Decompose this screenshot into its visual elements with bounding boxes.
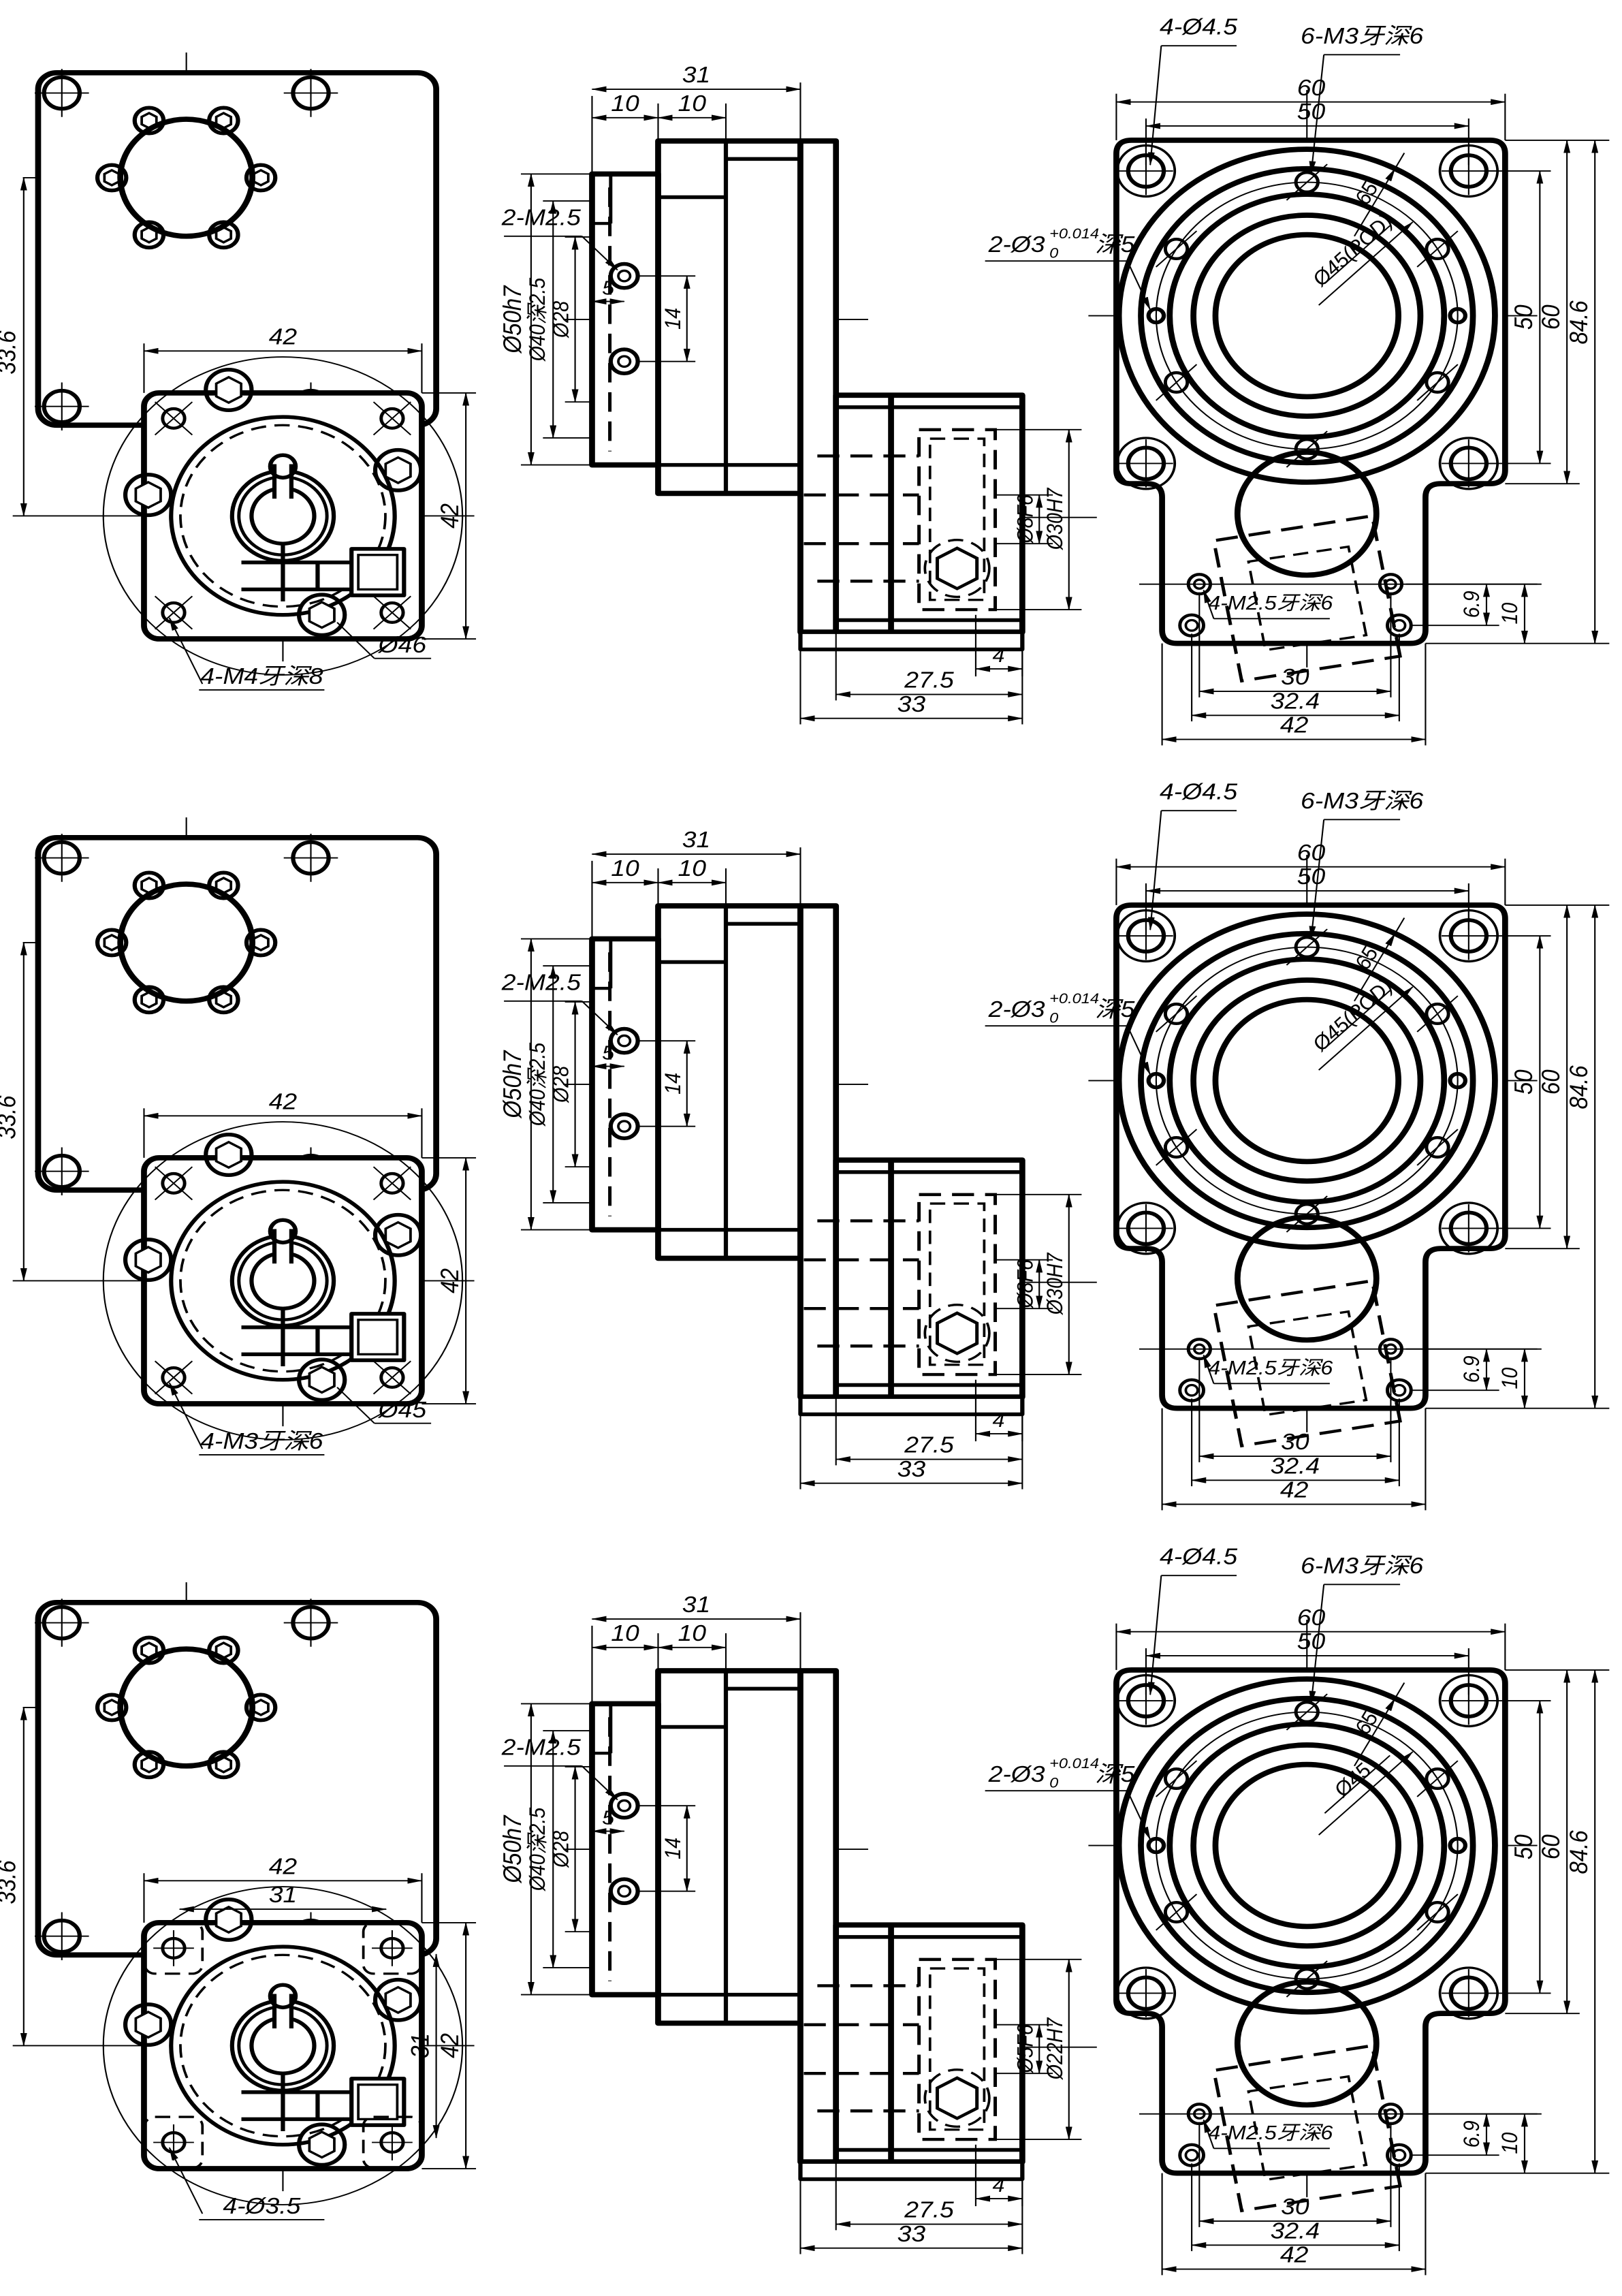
side-section-view: 311010Ø50h7Ø40深2.5Ø282-M2.5514Ø8F6Ø30H74… — [498, 828, 1097, 1489]
left-front-view: 33.642424-M3牙深6Ø45 — [0, 817, 476, 1455]
dim-label: 50 — [1297, 99, 1326, 125]
dim-label: 0 — [1049, 1775, 1059, 1791]
dim-label: 10 — [611, 1621, 639, 1646]
pin-note: 2-Ø3 — [988, 997, 1045, 1022]
tapped-holes-note: 6-M3牙深6 — [1301, 24, 1424, 49]
dim-label: 42 — [436, 503, 464, 529]
left-hole-note: 4-M3牙深6 — [200, 1429, 323, 1454]
dim-label: Ø50h7 — [498, 285, 526, 353]
dim-label: 42 — [269, 1089, 298, 1114]
dim-label: 10 — [678, 1621, 706, 1646]
dim-label: 30 — [1281, 1430, 1309, 1455]
dim-label: Ø28 — [549, 301, 573, 339]
dim-label: 4 — [993, 645, 1005, 667]
side-section-view: 311010Ø50h7Ø40深2.5Ø282-M2.5514Ø5F6Ø22H74… — [498, 1592, 1097, 2254]
dim-label: 31 — [407, 2033, 434, 2058]
dim-label: 4 — [993, 1410, 1005, 1432]
dim-label: 60 — [1537, 1069, 1565, 1095]
dim-label: 33 — [897, 1457, 926, 1482]
left-front-view: 33.6424231314-Ø3.5 — [0, 1582, 476, 2220]
left-boss-dia: Ø45 — [378, 1398, 427, 1423]
dim-label: 42 — [436, 1268, 464, 1293]
dim-label: 5 — [602, 1807, 615, 1829]
dim-label: 30 — [1281, 2195, 1309, 2220]
tapped-holes-note: 6-M3牙深6 — [1301, 1554, 1424, 1579]
dim-label: 33.6 — [0, 1095, 21, 1139]
pin-note: 2-Ø3 — [988, 232, 1045, 257]
dim-label: 31 — [682, 1592, 710, 1618]
dim-label: 42 — [269, 324, 298, 349]
screw-note: 2-M2.5 — [501, 205, 582, 230]
row-svg: 33.642424-M3牙深6Ø45311010Ø50h7Ø40深2.5Ø282… — [0, 765, 1622, 1530]
dim-label: 深5 — [1095, 997, 1134, 1022]
dim-label: 10 — [678, 856, 706, 881]
tab-screws-note: 4-M2.5牙深6 — [1208, 2122, 1333, 2144]
tapped-holes-note: 6-M3牙深6 — [1301, 789, 1424, 814]
pin-note: 2-Ø3 — [988, 1762, 1045, 1787]
dim-label: 31 — [682, 828, 710, 853]
dim-label: 10 — [1497, 1368, 1522, 1389]
output-face-view: 65Ø45(PCD)4-Ø4.56-M3牙深62-Ø3+0.0140深56050… — [985, 780, 1610, 1511]
dim-label: Ø28 — [549, 1066, 573, 1103]
corner-holes-note: 4-Ø4.5 — [1160, 15, 1237, 40]
dim-label: Ø40深2.5 — [525, 1042, 550, 1127]
left-hole-note: 4-M4牙深8 — [200, 664, 323, 689]
dim-label: 42 — [269, 1854, 298, 1879]
screw-note: 2-M2.5 — [501, 1735, 582, 1760]
dim-label: 33 — [897, 692, 926, 717]
dim-label: Ø40深2.5 — [525, 277, 550, 362]
dim-label: 0 — [1049, 245, 1059, 261]
dim-label: Ø50h7 — [498, 1814, 526, 1883]
dim-label: 50 — [1510, 1069, 1538, 1095]
dim-label: 10 — [1497, 603, 1522, 625]
dim-label: 42 — [1280, 713, 1309, 738]
tab-screws-note: 4-M2.5牙深6 — [1208, 1357, 1333, 1379]
dim-label: 10 — [678, 91, 706, 116]
dim-label: 32.4 — [1271, 689, 1320, 714]
dim-label: 42 — [1280, 1478, 1309, 1503]
dim-label: 5 — [602, 1042, 615, 1064]
drawing-rows: 33.642424-M4牙深8Ø46311010Ø50h7Ø40深2.5Ø282… — [0, 0, 1622, 2295]
drawing-row-top: 33.642424-M4牙深8Ø46311010Ø50h7Ø40深2.5Ø282… — [0, 0, 1622, 765]
dim-label: 深5 — [1095, 232, 1134, 257]
cad-drawing-page: { "document": { "type": "engineering-dra… — [0, 0, 1622, 2296]
dim-label: +0.014 — [1049, 990, 1099, 1006]
bore-large-label: Ø22H7 — [1043, 2017, 1067, 2081]
dim-label: 27.5 — [904, 668, 954, 693]
dim-label: 5 — [602, 277, 615, 299]
dim-label: 27.5 — [904, 1433, 954, 1458]
dim-label: 60 — [1297, 76, 1326, 101]
left-boss-dia: Ø46 — [378, 633, 427, 658]
dim-label: +0.014 — [1049, 1755, 1099, 1771]
dim-label: 10 — [611, 91, 639, 116]
output-face-view: 65Ø454-Ø4.56-M3牙深62-Ø3+0.0140深5605050608… — [985, 1545, 1610, 2276]
dim-label: 50 — [1297, 1629, 1326, 1654]
dim-label: Ø50h7 — [498, 1050, 526, 1118]
dim-label: +0.014 — [1049, 225, 1099, 241]
dim-label: 10 — [1497, 2133, 1522, 2154]
dim-label: 14 — [661, 1073, 685, 1095]
bore-large-label: Ø30H7 — [1043, 1253, 1067, 1316]
dim-label: Ø40深2.5 — [525, 1807, 550, 1891]
dim-label: 50 — [1510, 1834, 1538, 1859]
dim-label: 50 — [1297, 864, 1326, 890]
dim-label: 33.6 — [0, 330, 21, 375]
dim-label: 33 — [897, 2222, 926, 2247]
dim-label: 60 — [1297, 840, 1326, 866]
output-face-view: 65Ø45(PCD)4-Ø4.56-M3牙深62-Ø3+0.0140深56050… — [985, 15, 1610, 746]
left-front-view: 33.642424-M4牙深8Ø46 — [0, 52, 476, 690]
dim-label: 32.4 — [1271, 2218, 1320, 2244]
row-svg: 33.642424-M4牙深8Ø46311010Ø50h7Ø40深2.5Ø282… — [0, 0, 1622, 765]
dim-label: 6.9 — [1459, 1355, 1484, 1383]
dim-label: 14 — [661, 308, 685, 330]
bore-small-label: Ø8F6 — [1013, 1259, 1038, 1309]
corner-holes-note: 4-Ø4.5 — [1160, 780, 1237, 805]
dim-label: 30 — [1281, 665, 1309, 690]
dim-label: 33.6 — [0, 1860, 21, 1904]
dim-label: 32.4 — [1271, 1453, 1320, 1479]
dim-label: 深5 — [1095, 1762, 1134, 1787]
dim-label: 31 — [269, 1883, 297, 1908]
bore-small-label: Ø8F6 — [1013, 494, 1038, 544]
left-hole-note: 4-Ø3.5 — [223, 2194, 300, 2219]
bore-small-label: Ø5F6 — [1013, 2024, 1038, 2074]
dim-label: 6.9 — [1459, 2120, 1484, 2148]
dim-label: 60 — [1297, 1605, 1326, 1631]
dim-label: Ø28 — [549, 1831, 573, 1868]
screw-note: 2-M2.5 — [501, 970, 582, 995]
dim-label: 10 — [611, 856, 639, 881]
dim-label: 84.6 — [1565, 1830, 1593, 1874]
dim-label: 60 — [1537, 304, 1565, 330]
dim-label: 4 — [993, 2175, 1005, 2197]
drawing-row-middle: 33.642424-M3牙深6Ø45311010Ø50h7Ø40深2.5Ø282… — [0, 765, 1622, 1530]
drawing-row-bottom: 33.6424231314-Ø3.5311010Ø50h7Ø40深2.5Ø282… — [0, 1530, 1622, 2295]
dim-label: 27.5 — [904, 2198, 954, 2223]
dim-label: 60 — [1537, 1834, 1565, 1859]
dim-label: 6.9 — [1459, 591, 1484, 618]
dim-label: 0 — [1049, 1010, 1059, 1026]
dim-label: 42 — [1280, 2243, 1309, 2268]
dim-label: 50 — [1510, 304, 1538, 330]
side-section-view: 311010Ø50h7Ø40深2.5Ø282-M2.5514Ø8F6Ø30H74… — [498, 63, 1097, 724]
bore-large-label: Ø30H7 — [1043, 488, 1067, 551]
dim-label: 14 — [661, 1838, 685, 1859]
dim-label: 31 — [682, 63, 710, 88]
dim-label: 84.6 — [1565, 300, 1593, 345]
dim-label: 42 — [436, 2033, 464, 2058]
dim-label: 84.6 — [1565, 1065, 1593, 1110]
tab-screws-note: 4-M2.5牙深6 — [1208, 593, 1333, 614]
corner-holes-note: 4-Ø4.5 — [1160, 1545, 1237, 1570]
row-svg: 33.6424231314-Ø3.5311010Ø50h7Ø40深2.5Ø282… — [0, 1530, 1622, 2295]
